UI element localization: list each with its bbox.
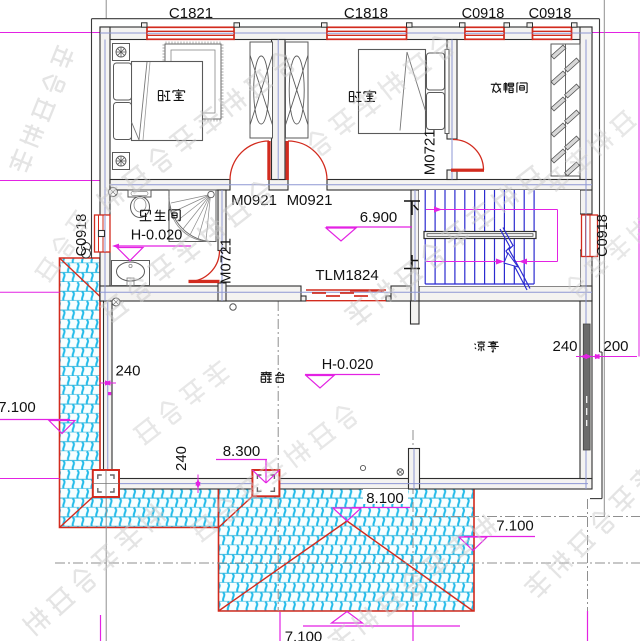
svg-text:M0921: M0921	[287, 192, 333, 209]
svg-text:C1818: C1818	[344, 5, 388, 22]
svg-text:8.100: 8.100	[366, 490, 404, 507]
svg-text:6.900: 6.900	[360, 209, 398, 226]
svg-text:7.100: 7.100	[0, 399, 36, 416]
svg-text:8.300: 8.300	[223, 443, 261, 460]
svg-text:H-0.020: H-0.020	[322, 357, 374, 373]
svg-text:C0918: C0918	[529, 6, 572, 22]
svg-text:7.100: 7.100	[285, 629, 323, 641]
svg-text:240: 240	[552, 338, 577, 355]
svg-text:H-0.020: H-0.020	[131, 228, 183, 244]
svg-text:C0918: C0918	[462, 6, 505, 22]
svg-text:TLM1824: TLM1824	[315, 267, 378, 284]
svg-text:M0721: M0721	[218, 238, 235, 284]
svg-text:7.100: 7.100	[496, 518, 534, 535]
svg-text:200: 200	[603, 338, 628, 355]
svg-text:C0918: C0918	[595, 214, 611, 257]
svg-text:240: 240	[115, 363, 140, 380]
svg-text:C1821: C1821	[169, 5, 213, 22]
svg-text:240: 240	[173, 446, 190, 471]
svg-text:M0721: M0721	[422, 129, 439, 175]
